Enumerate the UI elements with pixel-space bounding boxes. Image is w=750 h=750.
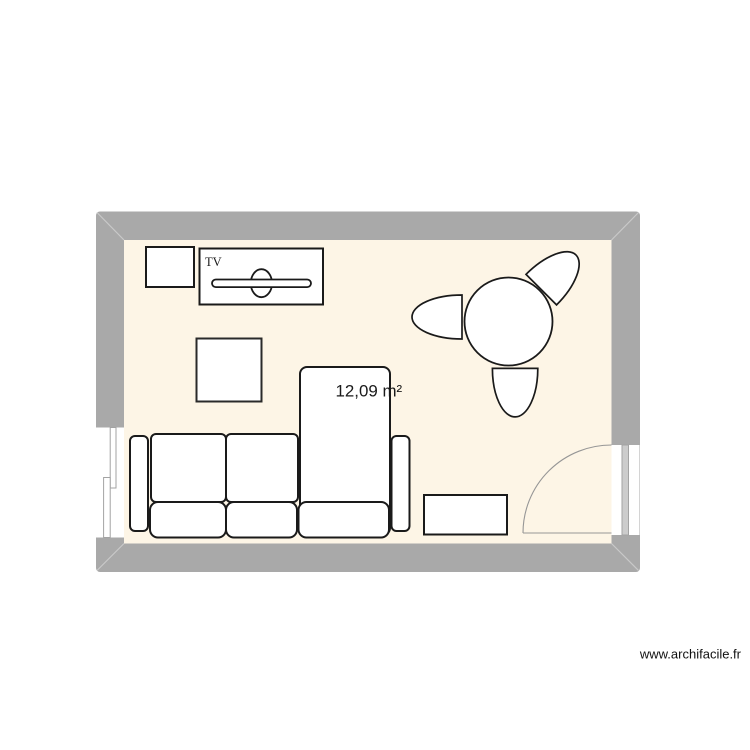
svg-text:www.archifacile.fr: www.archifacile.fr bbox=[639, 647, 742, 662]
svg-text:12,09 m²: 12,09 m² bbox=[336, 382, 403, 401]
svg-text:TV: TV bbox=[205, 255, 222, 269]
